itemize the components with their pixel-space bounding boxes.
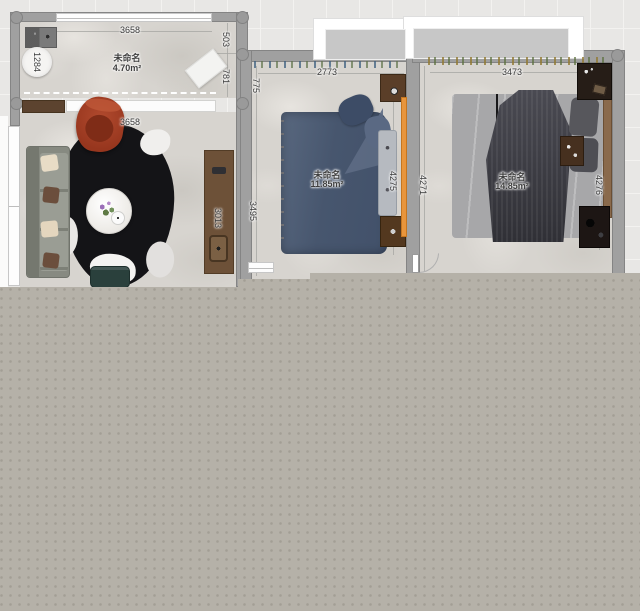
dim-bedroom-mid-top: 2773 bbox=[305, 66, 349, 78]
sofa-pillow bbox=[40, 154, 59, 172]
window-balcony-top[interactable] bbox=[56, 13, 212, 22]
floorplan-canvas: 3658 未命名 4.70m² 1284 503 781 3658 bbox=[0, 0, 640, 611]
room-bedroom-right-area: 14.85m² bbox=[472, 181, 552, 191]
opening-dashed-line bbox=[24, 92, 216, 94]
dim-living-top: 3658 bbox=[108, 116, 152, 128]
sofa-pillow bbox=[42, 186, 60, 204]
dim-living-right: 3013 bbox=[211, 197, 224, 239]
bed-edge-buttons bbox=[281, 120, 284, 248]
sofa-pillow bbox=[42, 252, 60, 269]
nightstand[interactable] bbox=[579, 206, 610, 248]
wall-joint-dot bbox=[236, 48, 249, 61]
dim-balcony-left: 1284 bbox=[30, 44, 43, 80]
ottoman[interactable] bbox=[90, 266, 130, 288]
bay-window-mid-sill bbox=[325, 29, 406, 60]
sofa[interactable] bbox=[26, 146, 70, 278]
dresser-desk[interactable] bbox=[577, 63, 612, 100]
console-device bbox=[209, 235, 228, 262]
wardrobe-strip[interactable] bbox=[401, 97, 407, 237]
door-leaf[interactable] bbox=[412, 254, 419, 273]
dim-balcony-right-upper: 503 bbox=[219, 26, 232, 54]
plate bbox=[111, 211, 125, 225]
bay-window-right-sill bbox=[413, 28, 569, 59]
sofa-pillow bbox=[40, 220, 58, 237]
sofa-backrest bbox=[27, 147, 39, 277]
exterior-strip bbox=[0, 116, 8, 287]
wall-joint-dot bbox=[611, 49, 624, 62]
dim-bedroom-mid-right: 4275 bbox=[386, 160, 399, 202]
coffee-table[interactable] bbox=[86, 188, 132, 234]
bed-pillow bbox=[568, 97, 599, 137]
storage-cabinet[interactable] bbox=[22, 100, 65, 113]
wall-joint-dot bbox=[236, 11, 249, 24]
dim-balcony-right-lower: 781 bbox=[219, 60, 232, 94]
wall-joint-dot bbox=[10, 11, 23, 24]
dim-balcony-top: 3658 bbox=[108, 24, 152, 36]
dim-bedroom-right-top: 3473 bbox=[490, 66, 534, 78]
dim-bedroom-mid-left-upper: 775 bbox=[249, 72, 262, 100]
bed-tray bbox=[560, 136, 584, 166]
bed-duvet-dark bbox=[486, 90, 572, 242]
remote-control bbox=[212, 167, 226, 174]
dim-bedroom-right-right: 4276 bbox=[592, 164, 605, 206]
picture-frame bbox=[592, 84, 607, 96]
wall-joint-dot bbox=[236, 97, 249, 110]
dim-bedroom-mid-left-lower: 3495 bbox=[246, 190, 259, 232]
window-bedroom-mid-bottom[interactable] bbox=[248, 262, 274, 273]
window-living-left[interactable] bbox=[8, 126, 20, 286]
room-balcony-area: 4.70m² bbox=[95, 63, 159, 73]
dim-bedroom-right-left: 4271 bbox=[416, 164, 429, 206]
room-bedroom-mid-area: 11.85m² bbox=[287, 179, 367, 189]
